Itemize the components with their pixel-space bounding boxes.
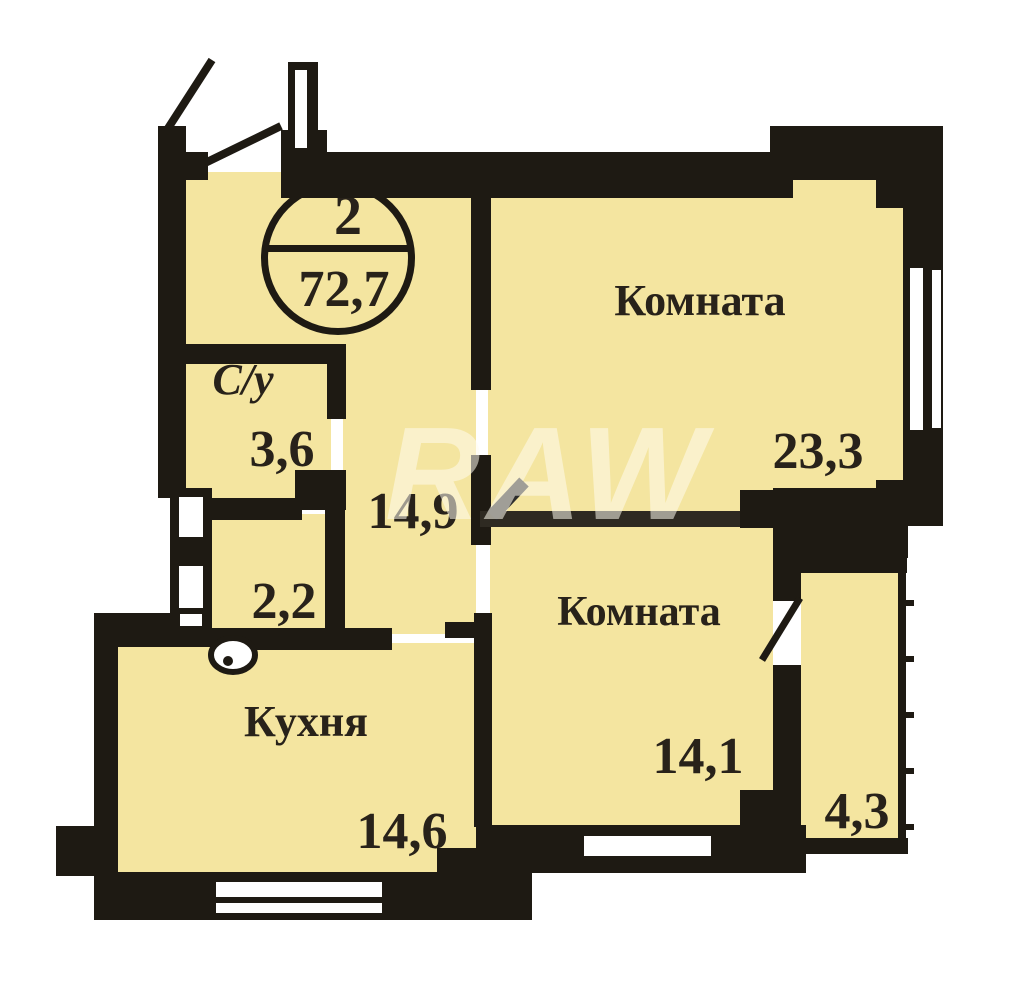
balcony-area: 4,3 [825,786,890,838]
window-kitchen-a [216,882,382,897]
watermark: RAW [385,408,711,540]
room2-label: Комната [557,591,720,633]
wall-kitchen-top [210,628,392,650]
vent-shaft-slot [295,70,307,148]
wall-left-upper [158,126,186,498]
riser-slot-a [179,497,203,537]
kitchen-area: 14,6 [357,806,448,858]
balcony-glazing-tick-5 [898,824,914,830]
balcony-door-opening [773,601,801,665]
entry-door-leaf-icon [205,126,281,163]
wall-room2-right [773,520,801,845]
wall-kitchen-room2 [474,613,492,827]
room2-area: 14,1 [653,731,744,783]
wall-balcony-bottom [804,838,908,854]
floor-plan: 2 72,7 [0,0,1024,997]
bathroom-area: 3,6 [250,424,315,476]
pilaster-top [876,170,905,208]
wall-kitchen-left [94,613,118,875]
balcony-glazing-tick-1 [898,600,914,606]
wall-corridor-right [325,497,345,637]
wall-entry-jamb [186,152,208,180]
bathroom-label: С/у [212,358,273,402]
wall-junction-block [437,848,532,920]
room1-area: 23,3 [773,426,864,478]
balcony-glazing-tick-3 [898,712,914,718]
balcony-glazing-tick-4 [898,768,914,774]
corridor-area: 2,2 [252,576,317,628]
badge-total-area: 72,7 [299,264,390,316]
window-room2 [584,836,711,856]
riser-slot-c [180,614,202,626]
window-room1-a [910,268,923,430]
balcony-glazing-tick-2 [898,656,914,662]
kitchen-label: Кухня [244,700,368,744]
wall-bathroom-top [184,344,346,364]
wall-bathroom-right [327,344,346,419]
wall-top [281,152,793,198]
room1-label: Комната [614,279,785,323]
entry-door-swing-icon [165,60,212,133]
wall-room1-left-upper [471,170,491,390]
wall-balcony-top [801,553,907,573]
riser-slot-b [179,566,203,608]
wall-step-bottomleft [56,826,96,876]
window-kitchen-b [216,903,382,913]
window-room1-b [932,270,941,428]
